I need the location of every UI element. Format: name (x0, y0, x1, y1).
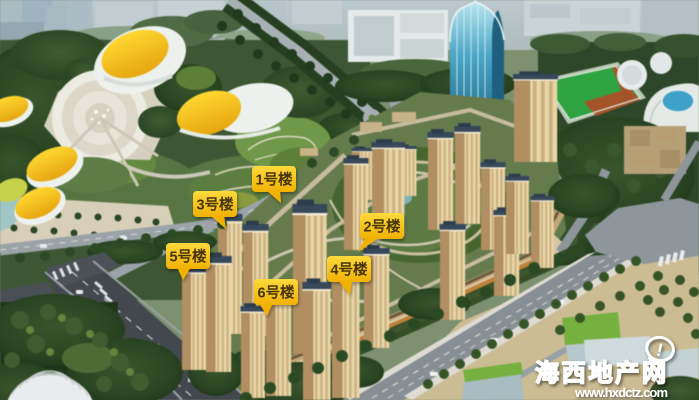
svg-text:2号楼: 2号楼 (363, 218, 401, 236)
svg-text:5号楼: 5号楼 (169, 248, 207, 266)
svg-text:1号楼: 1号楼 (255, 171, 293, 189)
svg-text:4号楼: 4号楼 (330, 261, 368, 279)
svg-text:海西地产网: 海西地产网 (535, 359, 666, 387)
svg-text:3号楼: 3号楼 (196, 196, 234, 214)
svg-text:6号楼: 6号楼 (257, 284, 295, 302)
svg-text:www.hxdctz.com: www.hxdctz.com (574, 385, 668, 400)
